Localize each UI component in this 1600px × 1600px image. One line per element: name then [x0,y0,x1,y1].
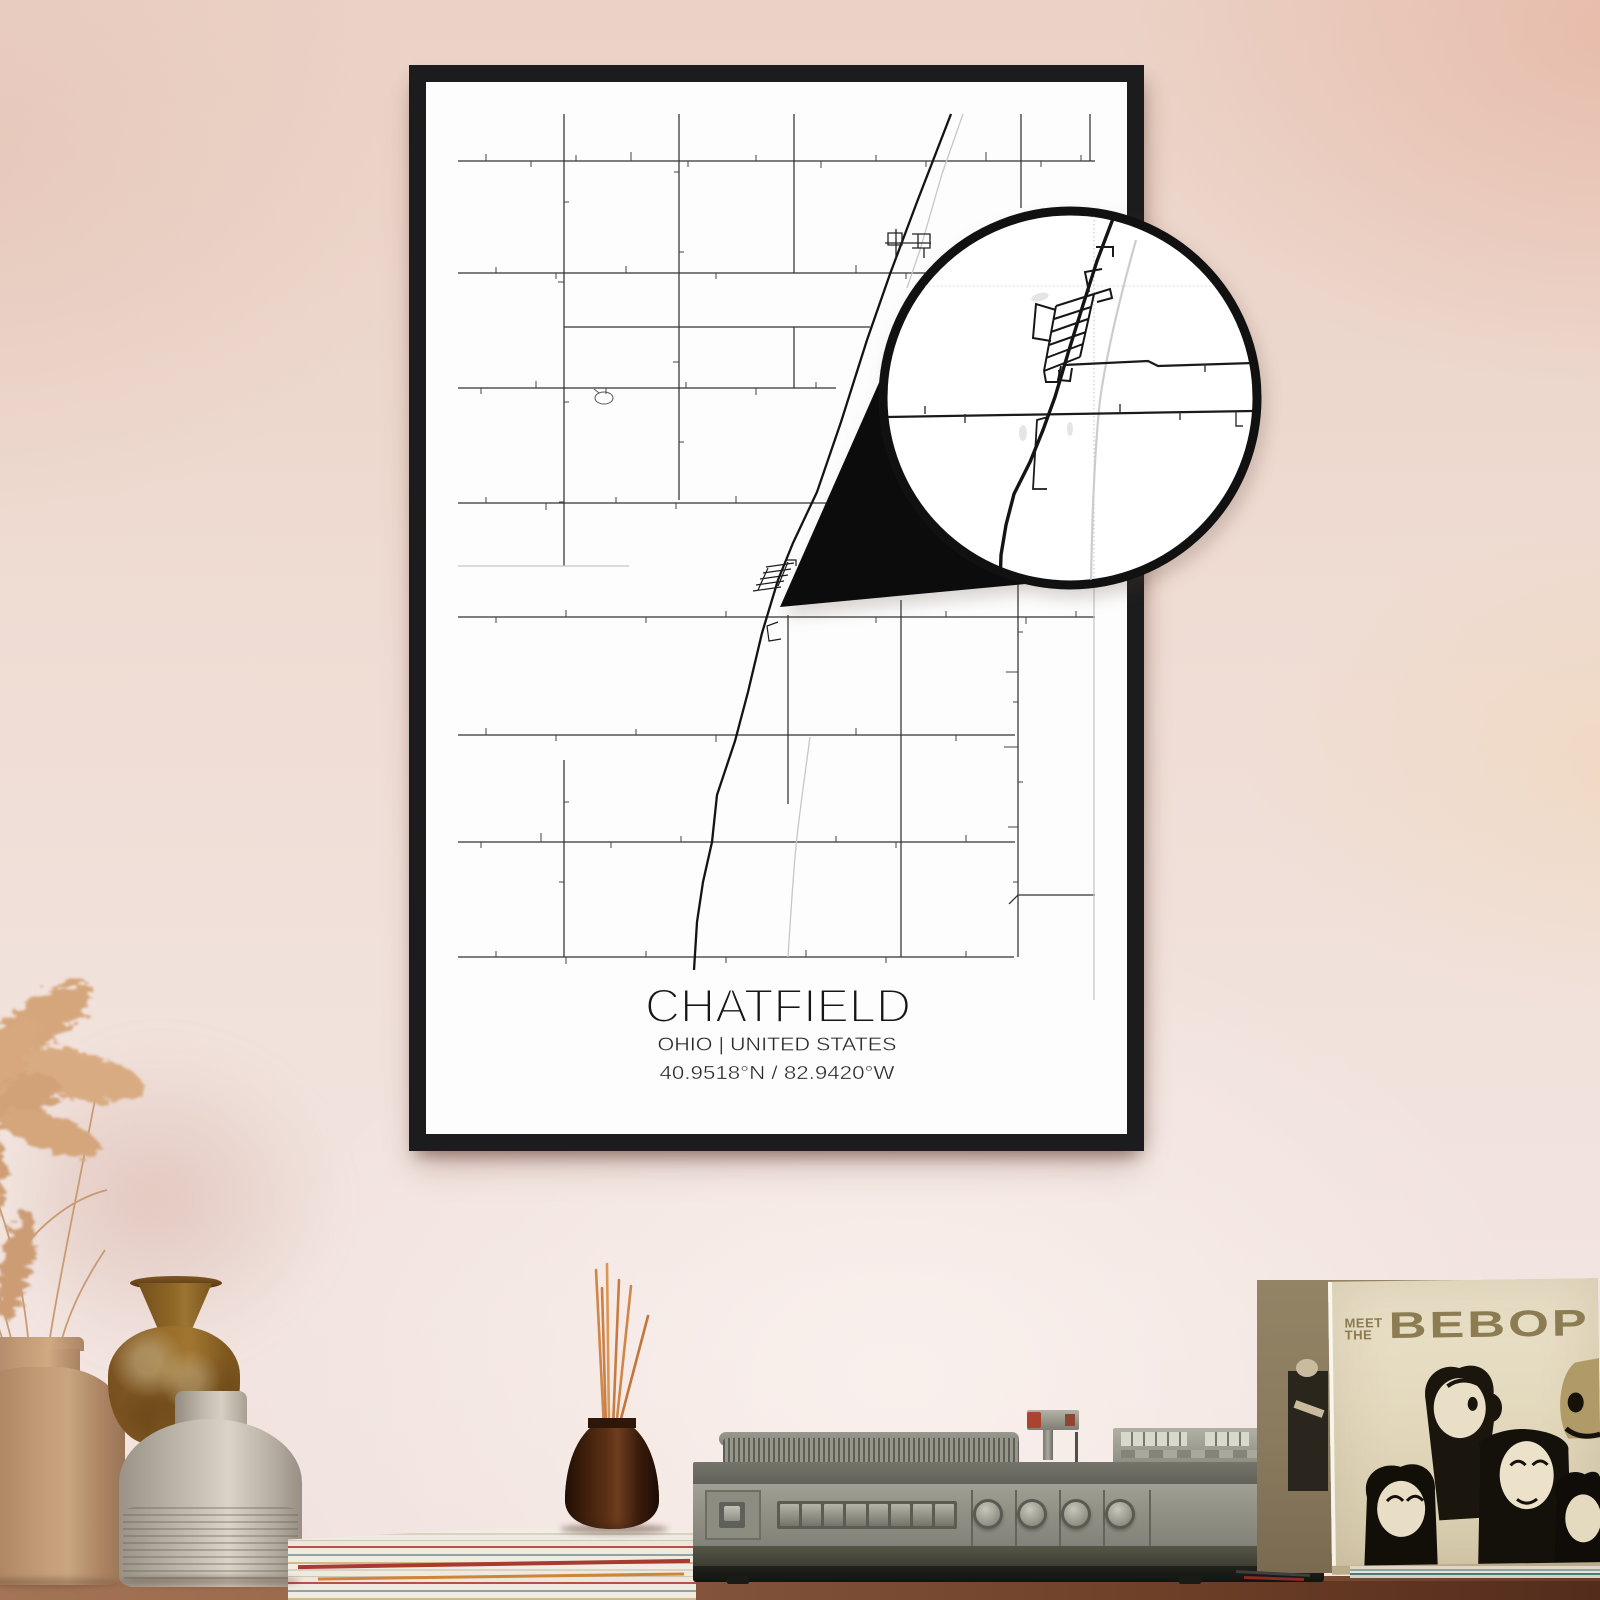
svg-text:40.9518°N / 82.9420°W: 40.9518°N / 82.9420°W [660,1063,895,1083]
svg-text:CHATFIELD: CHATFIELD [645,980,911,1033]
svg-text:OHIO | UNITED STATES: OHIO | UNITED STATES [658,1034,897,1055]
